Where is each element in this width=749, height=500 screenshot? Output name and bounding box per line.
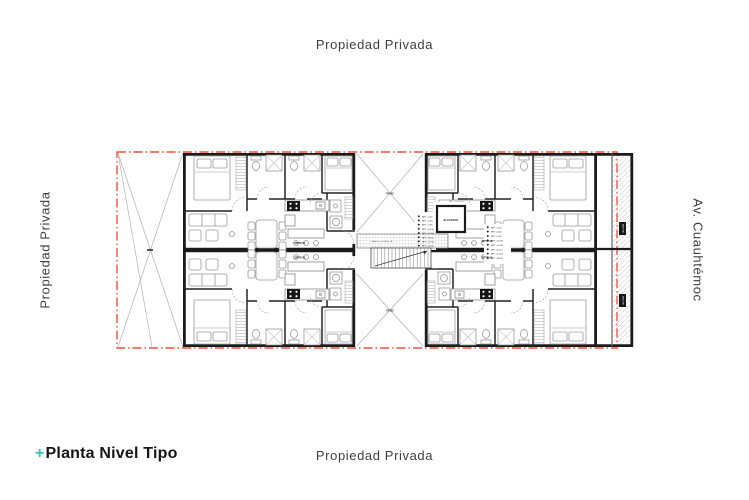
level-note: NPT +15.12 — [422, 237, 434, 239]
level-note: NPT +17.64 — [422, 242, 434, 244]
floor-plan: BALCON BALCON PASILLO DE REJILLA — [0, 0, 749, 500]
left-apartment-block — [183, 153, 355, 347]
staircase — [371, 248, 431, 268]
level-note: NPT +20.16 — [491, 258, 503, 260]
level-note: NPT +7.56 — [491, 236, 502, 238]
level-note: NPT +2.52 — [422, 216, 433, 218]
patio-label: PATIO — [387, 193, 394, 196]
level-note: NPT +7.56 — [422, 225, 433, 227]
level-note: NPT +10.08 — [491, 241, 503, 243]
level-note: NPT +5.04 — [422, 221, 433, 223]
unit-label: DPTO 04 — [482, 256, 493, 260]
balcony-label: BALCON — [622, 224, 625, 233]
right-block-balcony-side: BALCON BALCON — [597, 153, 633, 347]
level-note: NPT +15.12 — [491, 249, 503, 251]
drawing-sheet: Propiedad Privada Propiedad Privada Prop… — [0, 0, 749, 500]
level-note: NPT +20.16 — [422, 246, 434, 248]
corridor-label: PASILLO DE REJILLA — [372, 240, 393, 243]
unit-label: DPTO 03 — [482, 239, 493, 243]
level-note: NPT +2.52 — [491, 227, 502, 229]
elevator-label: ELEVADOR — [444, 219, 459, 222]
balcony-label: BALCON — [622, 296, 625, 305]
patio-label: PATIO — [387, 310, 394, 313]
level-note: NPT +10.08 — [422, 229, 434, 231]
level-note: NPT +12.60 — [491, 245, 503, 247]
level-note: NPT +5.04 — [491, 232, 502, 234]
unit-label: DPTO 01 — [295, 241, 306, 245]
unit-label: DPTO 02 — [295, 256, 306, 260]
level-note: NPT +17.64 — [491, 254, 503, 256]
level-note: NPT +12.60 — [422, 233, 434, 235]
elevator: ELEVADOR — [437, 206, 465, 232]
